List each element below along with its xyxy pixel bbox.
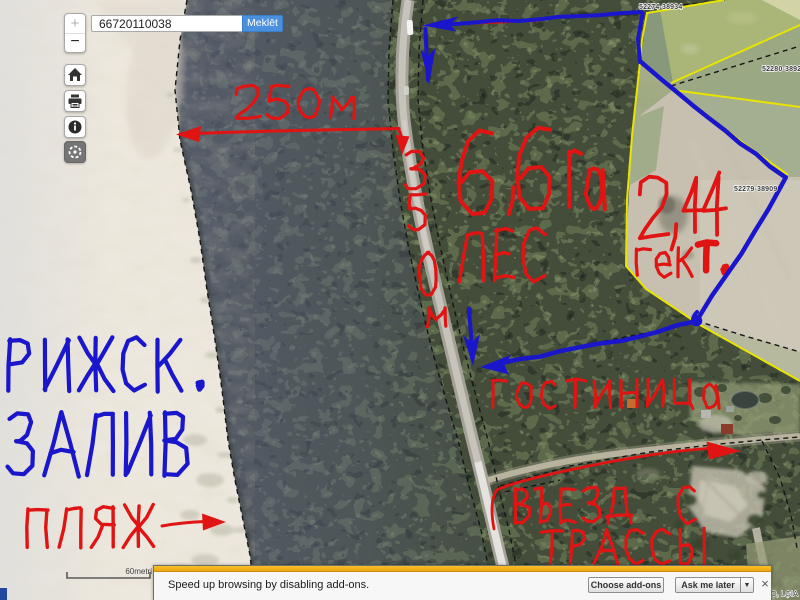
svg-text:52279-38909: 52279-38909 (734, 186, 777, 193)
svg-text:60metri: 60metri (125, 567, 152, 576)
svg-text:52274-38934: 52274-38934 (639, 4, 682, 11)
svg-text:52280-3892: 52280-3892 (762, 66, 800, 73)
svg-text:O, LĢIA: O, LĢIA (771, 589, 798, 598)
